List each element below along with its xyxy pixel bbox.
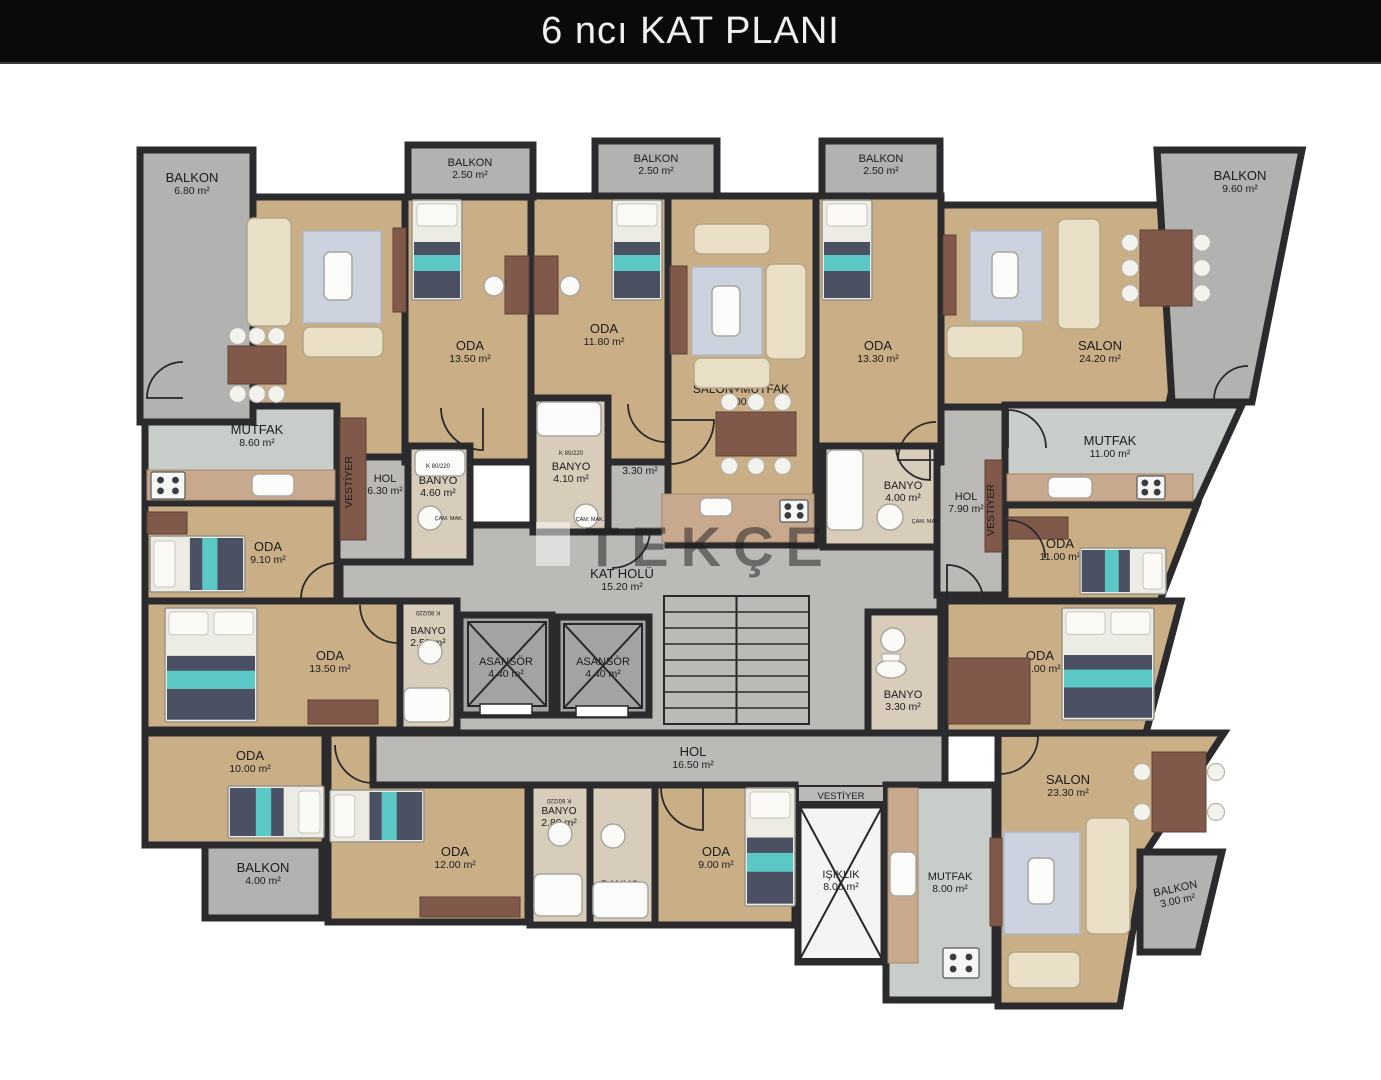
sofa bbox=[694, 358, 770, 388]
annotation-text: ÇAM. MAK. bbox=[912, 519, 941, 525]
bed-runner bbox=[1105, 550, 1119, 592]
bed-runner bbox=[382, 792, 397, 840]
title-bar: 6 ncı KAT PLANI bbox=[0, 0, 1381, 64]
burner-icon bbox=[157, 477, 164, 484]
bed-runner bbox=[414, 255, 460, 271]
bath-fixture bbox=[534, 874, 582, 916]
sink-icon bbox=[560, 276, 580, 296]
annotation-text: K 80/220 bbox=[426, 464, 451, 470]
bed-runner bbox=[614, 255, 660, 271]
chair-icon bbox=[268, 328, 285, 345]
bath-fixture bbox=[324, 252, 352, 300]
room-label-balkon-250b: BALKON2.50 m² bbox=[634, 153, 679, 177]
sofa bbox=[1086, 818, 1130, 934]
bath-fixture bbox=[890, 852, 916, 896]
room-label-banyo-460: BANYO4.60 m² bbox=[419, 475, 458, 499]
chair-icon bbox=[1194, 260, 1211, 277]
room-balkon-250a: BALKON2.50 m² bbox=[408, 145, 533, 197]
bed bbox=[412, 200, 462, 300]
watermark-logo bbox=[536, 522, 570, 566]
pillow bbox=[1066, 612, 1105, 634]
room-label-oda-910: ODA9.10 m² bbox=[250, 539, 286, 566]
elevator-door bbox=[480, 704, 532, 715]
burner-icon bbox=[950, 966, 957, 973]
bed bbox=[330, 790, 424, 842]
stove-icon bbox=[943, 948, 979, 978]
annotation-text: K 80/220 bbox=[415, 609, 440, 615]
bath-fixture bbox=[252, 474, 294, 496]
chair-icon bbox=[229, 328, 246, 345]
burner-icon bbox=[1141, 480, 1148, 487]
chair-icon bbox=[1122, 285, 1139, 302]
cabinet bbox=[990, 838, 1002, 926]
room-balkon-300: BALKON3.00 m² bbox=[1140, 852, 1222, 952]
burner-icon bbox=[966, 966, 973, 973]
chair-icon bbox=[249, 386, 266, 403]
chair-icon bbox=[748, 458, 765, 475]
pillow bbox=[1111, 612, 1150, 634]
bath-fixture bbox=[1048, 477, 1092, 498]
bed bbox=[1080, 548, 1166, 594]
annotation-text: K 80/220 bbox=[559, 451, 584, 457]
pillow bbox=[334, 795, 355, 837]
chair-icon bbox=[721, 394, 738, 411]
sofa bbox=[1058, 219, 1100, 329]
chair-icon bbox=[774, 458, 791, 475]
annotation-text: ÇAM. MAK. bbox=[435, 516, 464, 522]
burner-icon bbox=[784, 503, 791, 510]
sink-icon bbox=[548, 822, 572, 846]
chair-icon bbox=[1194, 285, 1211, 302]
cabinet bbox=[308, 700, 378, 724]
room-label-banyo-400r: BANYO4.00 m² bbox=[884, 480, 923, 504]
chair-icon bbox=[1122, 260, 1139, 277]
room-label-banyo-410: BANYO4.10 m² bbox=[552, 461, 591, 485]
bath-fixture bbox=[992, 252, 1018, 298]
bath-fixture bbox=[712, 286, 740, 336]
room-label-balkon-250a: BALKON2.50 m² bbox=[448, 157, 493, 181]
burner-icon bbox=[172, 477, 179, 484]
room-balkon-250b: BALKON2.50 m² bbox=[595, 141, 717, 196]
cabinet bbox=[420, 897, 520, 917]
pillow bbox=[827, 204, 867, 226]
pillow bbox=[154, 541, 175, 587]
dining-table bbox=[1140, 230, 1192, 306]
sink-icon bbox=[418, 640, 442, 664]
bed bbox=[612, 200, 662, 300]
bath-fixture bbox=[700, 498, 732, 516]
page-title: 6 ncı KAT PLANI bbox=[541, 10, 840, 53]
sofa bbox=[947, 326, 1023, 358]
wc-icon bbox=[876, 660, 906, 678]
stove-icon bbox=[151, 472, 185, 499]
annotation-text: VESTİYER bbox=[342, 456, 355, 508]
chair-icon bbox=[1134, 804, 1151, 821]
bed-runner bbox=[1064, 670, 1152, 688]
stove-icon bbox=[1137, 476, 1165, 499]
sofa bbox=[1008, 952, 1080, 988]
wc-tank bbox=[882, 654, 900, 661]
chair-icon bbox=[1194, 234, 1211, 251]
burner-icon bbox=[172, 488, 179, 495]
room-label-oda-900: ODA9.00 m² bbox=[698, 844, 734, 871]
bed bbox=[1062, 608, 1154, 720]
bath-fixture bbox=[404, 688, 450, 722]
cabinet bbox=[393, 228, 406, 312]
elevator-door bbox=[576, 706, 628, 717]
sink-icon bbox=[881, 628, 905, 652]
cabinet bbox=[505, 256, 529, 314]
chair-icon bbox=[774, 394, 791, 411]
dining-table bbox=[228, 346, 286, 384]
room-label-mutfak-1100: MUTFAK11.00 m² bbox=[1084, 433, 1137, 460]
pillow bbox=[1143, 553, 1162, 589]
bed-runner bbox=[202, 538, 217, 590]
sink-icon bbox=[601, 824, 625, 848]
chair-icon bbox=[1122, 234, 1139, 251]
burner-icon bbox=[966, 954, 973, 961]
bath-fixture bbox=[537, 402, 601, 436]
bed bbox=[228, 786, 324, 838]
room-balkon-400: BALKON4.00 m² bbox=[205, 845, 322, 918]
room-label-salon-2330: SALON23.30 m² bbox=[1046, 772, 1090, 799]
room-label-salon-2420: SALON24.20 m² bbox=[1078, 338, 1122, 365]
burner-icon bbox=[950, 954, 957, 961]
pillow bbox=[169, 612, 208, 635]
bed bbox=[822, 200, 872, 300]
bed bbox=[745, 788, 795, 906]
dining-table bbox=[716, 412, 796, 456]
bed bbox=[150, 536, 245, 592]
dining-table bbox=[1152, 752, 1206, 832]
cabinet bbox=[147, 512, 187, 534]
burner-icon bbox=[1154, 489, 1161, 496]
floor-plan-canvas: KAT HOLÜ15.20 m²HOL16.50 m²HOL6.30 m²HOL… bbox=[0, 0, 1381, 1080]
bath-fixture bbox=[415, 450, 465, 476]
chair-icon bbox=[1208, 764, 1225, 781]
burner-icon bbox=[157, 488, 164, 495]
watermark-text: TEKÇE bbox=[585, 515, 835, 578]
chair-icon bbox=[1134, 764, 1151, 781]
cabinet bbox=[670, 266, 687, 354]
floor-plan-page: 6 ncı KAT PLANI KAT HOLÜ15.20 m²HOL16.50… bbox=[0, 0, 1381, 1080]
bed-runner bbox=[824, 255, 870, 271]
chair-icon bbox=[748, 394, 765, 411]
bed-runner bbox=[747, 853, 793, 872]
chair-icon bbox=[249, 328, 266, 345]
chair-icon bbox=[268, 386, 285, 403]
room-label-balkon-250c: BALKON2.50 m² bbox=[859, 153, 904, 177]
pillow bbox=[299, 791, 320, 833]
annotation-text: VESTİYER bbox=[984, 484, 997, 536]
sink-icon bbox=[484, 276, 504, 296]
bed bbox=[165, 608, 257, 722]
sofa bbox=[694, 224, 770, 254]
bed-runner bbox=[256, 788, 271, 836]
sink-icon bbox=[877, 504, 903, 530]
burner-icon bbox=[1141, 489, 1148, 496]
sofa bbox=[247, 218, 291, 326]
burner-icon bbox=[1154, 480, 1161, 487]
room-label-banyo-330: BANYO3.30 m² bbox=[884, 689, 923, 713]
bath-fixture bbox=[1028, 858, 1054, 904]
cabinet bbox=[534, 256, 558, 314]
sofa bbox=[766, 264, 806, 359]
pillow bbox=[617, 204, 657, 226]
burner-icon bbox=[797, 503, 804, 510]
annotation-text: K 60/220 bbox=[546, 797, 571, 803]
sofa bbox=[303, 327, 383, 357]
chair-icon bbox=[229, 386, 246, 403]
cabinet bbox=[948, 658, 1030, 724]
pillow bbox=[417, 204, 457, 226]
bed-runner bbox=[167, 671, 255, 689]
chair-icon bbox=[721, 458, 738, 475]
room-label-mutfak-800: MUTFAK8.00 m² bbox=[928, 871, 973, 895]
annotation-text: VESTİYER bbox=[818, 791, 865, 802]
bath-fixture bbox=[593, 882, 648, 918]
cabinet bbox=[943, 235, 956, 315]
chair-icon bbox=[1208, 804, 1225, 821]
pillow bbox=[214, 612, 253, 635]
pillow bbox=[750, 792, 790, 818]
room-balkon-250c: BALKON2.50 m² bbox=[822, 141, 940, 196]
